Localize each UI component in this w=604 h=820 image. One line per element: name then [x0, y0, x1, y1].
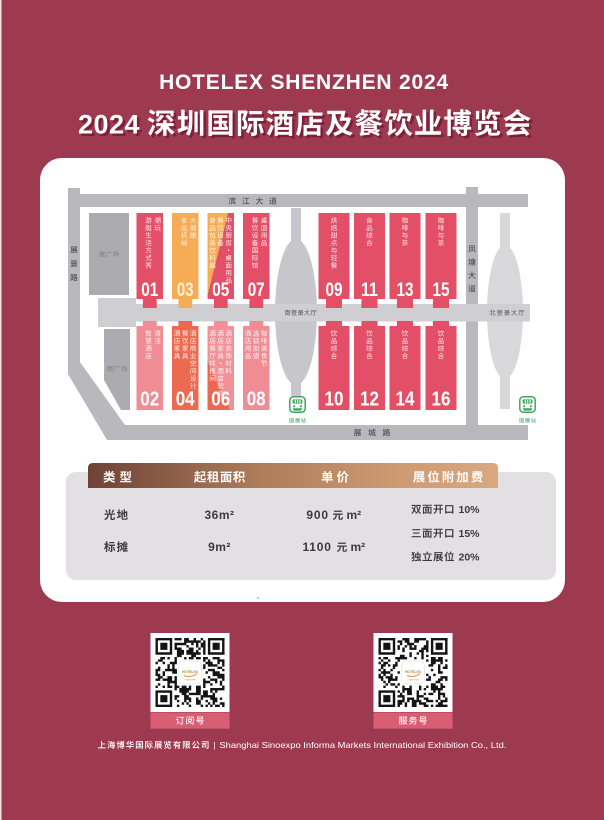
svg-text:11: 11	[361, 279, 378, 301]
svg-text:|: |	[213, 741, 215, 750]
svg-text:10: 10	[325, 388, 344, 411]
svg-text:01: 01	[141, 279, 158, 301]
svg-text:SHANGHAI: SHANGHAI	[184, 679, 196, 682]
svg-text:2024: 2024	[78, 110, 140, 140]
svg-text:06: 06	[211, 388, 230, 411]
svg-text:02: 02	[140, 388, 159, 411]
svg-text:10%: 10%	[459, 504, 481, 516]
svg-text:05: 05	[212, 279, 229, 301]
svg-text:03: 03	[177, 279, 194, 301]
svg-text:36m²: 36m²	[204, 508, 234, 522]
svg-text:HOTELEX: HOTELEX	[405, 670, 422, 674]
svg-text:SHANGHAI: SHANGHAI	[407, 679, 419, 682]
svg-text:12: 12	[360, 388, 379, 411]
svg-text:9m²: 9m²	[208, 540, 231, 554]
svg-text:Shanghai Sinoexpo Informa Mark: Shanghai Sinoexpo Informa Markets Intern…	[219, 741, 506, 750]
svg-text:16: 16	[432, 388, 451, 411]
svg-text:HOTELEX: HOTELEX	[182, 670, 199, 674]
svg-text:20%: 20%	[459, 552, 481, 564]
svg-text:m²: m²	[351, 540, 366, 554]
svg-text:1100: 1100	[303, 540, 332, 554]
svg-text:04: 04	[176, 388, 195, 411]
svg-text:m²: m²	[347, 508, 362, 522]
svg-text:HOTELEX SHENZHEN 2024: HOTELEX SHENZHEN 2024	[159, 71, 449, 94]
svg-text:15: 15	[433, 279, 450, 301]
svg-text:07: 07	[248, 279, 265, 301]
svg-text:09: 09	[326, 279, 343, 301]
svg-text:13: 13	[397, 279, 414, 301]
svg-text:15%: 15%	[459, 528, 481, 540]
svg-text:900: 900	[306, 508, 328, 522]
svg-text:14: 14	[396, 388, 415, 411]
svg-text:08: 08	[247, 388, 266, 411]
